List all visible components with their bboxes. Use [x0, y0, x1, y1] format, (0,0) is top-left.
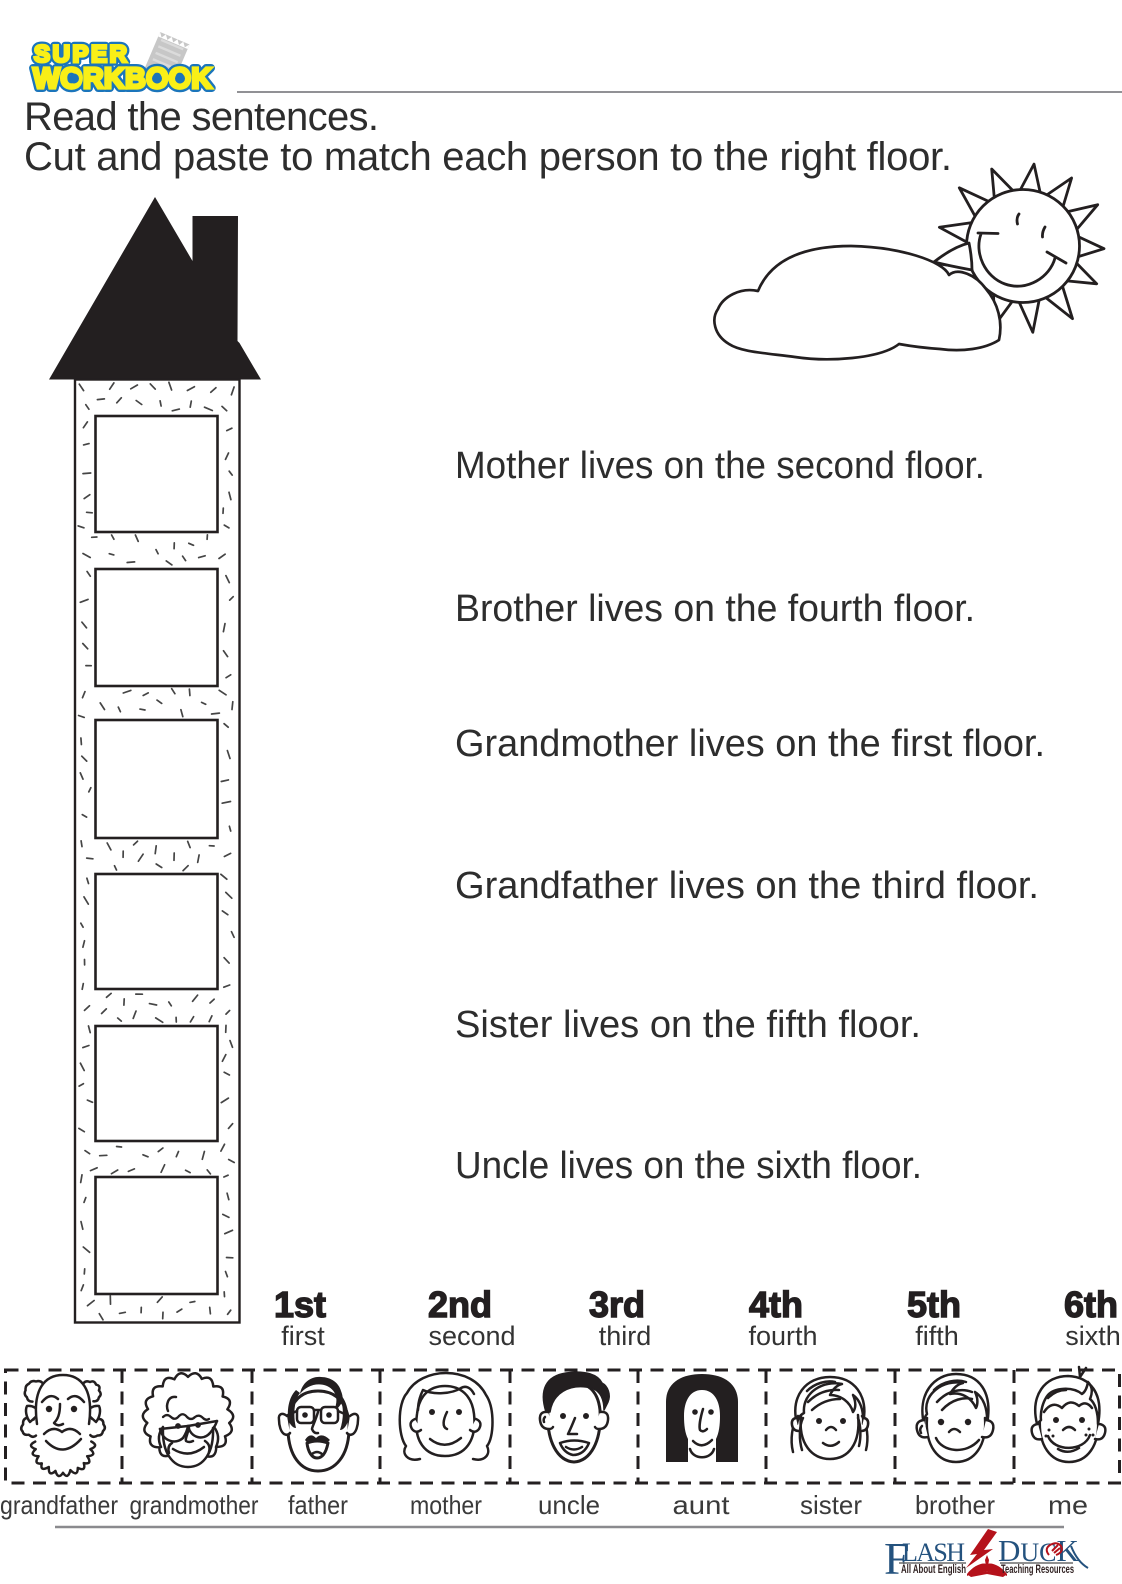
svg-text:first: first — [281, 1321, 325, 1351]
svg-text:4th: 4th — [749, 1284, 803, 1325]
svg-text:Brother lives on the fourth fl: Brother lives on the fourth floor. — [455, 588, 975, 630]
svg-text:6th: 6th — [1064, 1284, 1118, 1325]
svg-text:fifth: fifth — [915, 1321, 959, 1351]
svg-text:uncle: uncle — [538, 1490, 600, 1520]
svg-text:second: second — [428, 1321, 515, 1351]
svg-text:Grandfather lives on the third: Grandfather lives on the third floor. — [455, 865, 1039, 907]
svg-text:Mother lives on the second flo: Mother lives on the second floor. — [455, 445, 985, 487]
svg-text:WORKBOOK: WORKBOOK — [33, 63, 212, 95]
svg-text:grandmother: grandmother — [130, 1490, 259, 1520]
svg-text:me: me — [1048, 1490, 1088, 1520]
svg-text:1st: 1st — [274, 1284, 326, 1325]
svg-text:Grandmother lives on the first: Grandmother lives on the first floor. — [455, 723, 1045, 765]
svg-text:brother: brother — [915, 1490, 995, 1520]
svg-text:mother: mother — [410, 1490, 482, 1520]
svg-text:3rd: 3rd — [589, 1284, 645, 1325]
svg-text:Read the sentences.: Read the sentences. — [24, 95, 379, 139]
svg-text:sixth: sixth — [1065, 1321, 1121, 1351]
svg-text:third: third — [599, 1321, 652, 1351]
svg-text:All About English: All About English — [901, 1562, 966, 1576]
svg-text:father: father — [288, 1490, 348, 1520]
svg-text:Uncle lives on the sixth floor: Uncle lives on the sixth floor. — [455, 1145, 922, 1187]
svg-text:5th: 5th — [907, 1284, 961, 1325]
svg-text:fourth: fourth — [748, 1321, 817, 1351]
svg-text:2nd: 2nd — [428, 1284, 492, 1325]
svg-text:Sister lives on the fifth floo: Sister lives on the fifth floor. — [455, 1004, 921, 1046]
svg-text:Teaching Resources: Teaching Resources — [1001, 1562, 1074, 1576]
svg-text:grandfather: grandfather — [0, 1490, 118, 1520]
svg-text:Cut and paste to match each p: Cut and paste to match each person to th… — [24, 135, 952, 179]
svg-text:sister: sister — [800, 1490, 862, 1520]
svg-text:aunt: aunt — [673, 1490, 731, 1520]
